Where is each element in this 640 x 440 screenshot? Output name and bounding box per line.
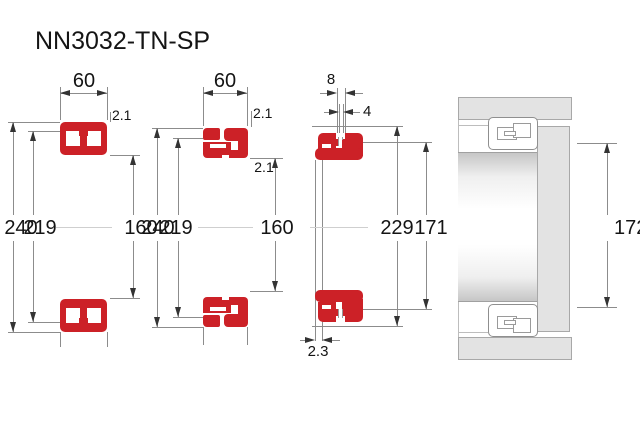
- dim-line: [397, 126, 398, 215]
- extension-line: [247, 87, 248, 126]
- dim-line: [178, 138, 179, 215]
- bearing-section-top: [315, 133, 363, 160]
- dim-line: [157, 241, 158, 327]
- dim-line: [178, 241, 179, 317]
- dim-groove-label: 8: [327, 72, 335, 87]
- ring-notch: [222, 297, 229, 300]
- dim-arrow: [60, 90, 70, 96]
- dim-arrow: [423, 299, 429, 309]
- dim-arrow: [175, 307, 181, 317]
- dim-line: [353, 112, 360, 113]
- rib-outline: [504, 131, 516, 136]
- dim-arrow: [203, 90, 213, 96]
- extension-line: [339, 104, 340, 133]
- dim-hole-label: 4: [363, 104, 371, 119]
- roller-window: [87, 131, 101, 146]
- dim-line: [13, 122, 14, 215]
- housing-shoulder: [537, 126, 570, 332]
- leader-line: [110, 112, 111, 122]
- bearing-outline-top: [488, 117, 538, 150]
- extension-line: [107, 87, 108, 120]
- dim-arrow: [237, 90, 247, 96]
- dim-abutment-label: 171: [414, 218, 447, 238]
- extension-line: [110, 298, 140, 299]
- cage-tab: [79, 131, 88, 136]
- extension-line: [8, 332, 60, 333]
- dim-line: [355, 93, 363, 94]
- cage-slot: [210, 307, 226, 311]
- leader-line: [251, 111, 252, 127]
- bearing-section-top: [60, 122, 107, 155]
- dim-arrow: [272, 281, 278, 291]
- dim-arrow: [345, 90, 355, 96]
- extension-line: [250, 291, 283, 292]
- extension-line: [352, 142, 432, 143]
- inner-strip: [315, 148, 363, 160]
- extension-line: [152, 327, 203, 328]
- dim-offset-label: 2.3: [308, 344, 329, 359]
- cage-slot: [210, 144, 226, 148]
- rib-outline: [504, 320, 516, 325]
- housing-bottom: [458, 337, 572, 360]
- outer-ring-block: [203, 315, 220, 327]
- roller-window: [66, 131, 80, 146]
- dim-recess-label: 172: [614, 218, 640, 238]
- dim-arrow: [394, 126, 400, 136]
- extension-line: [312, 326, 403, 327]
- dim-arrow: [343, 109, 353, 115]
- extension-line: [28, 322, 60, 323]
- outer-ring-block: [203, 128, 220, 140]
- extension-line: [247, 327, 248, 345]
- dim-arrow: [10, 122, 16, 132]
- bearing-section-bottom: [60, 299, 107, 332]
- dim-arrow: [604, 297, 610, 307]
- dim-arrow: [329, 109, 339, 115]
- extension-line: [577, 307, 617, 308]
- extension-line: [577, 143, 617, 144]
- dim-arrow: [175, 138, 181, 148]
- dim-arrow: [30, 131, 36, 141]
- dim-chamfer-label: 2.1: [112, 108, 131, 122]
- dim-line: [13, 241, 14, 332]
- bearing-outline-bottom: [488, 304, 538, 337]
- dim-line: [332, 340, 340, 341]
- roller-window: [66, 308, 80, 323]
- ring-notch: [222, 155, 229, 158]
- dim-arrow: [30, 312, 36, 322]
- center-line: [310, 227, 368, 228]
- bore-line: [458, 125, 488, 126]
- dim-line: [33, 131, 34, 215]
- shaft: [458, 152, 537, 302]
- dim-raceway-label: 219: [159, 218, 192, 238]
- roller-block: [224, 314, 248, 327]
- extension-line: [352, 309, 432, 310]
- drawing-canvas: NN3032-TN-SP 60 2.1 240 219: [0, 0, 640, 440]
- dim-arrow: [130, 155, 136, 165]
- page-title: NN3032-TN-SP: [35, 28, 210, 54]
- dim-line: [607, 143, 608, 215]
- dim-arrow: [10, 322, 16, 332]
- cage-tab: [79, 318, 88, 323]
- dim-shoulder-label: 229: [380, 218, 413, 238]
- dim-line: [426, 142, 427, 215]
- dim-arrow: [97, 90, 107, 96]
- dim-width-label: 60: [73, 71, 95, 91]
- dim-arrow: [604, 143, 610, 153]
- center-line: [56, 227, 112, 228]
- dim-arrow: [327, 90, 337, 96]
- dim-arrow: [154, 317, 160, 327]
- center-line: [198, 227, 253, 228]
- dim-chamfer-inner-label: 2.1: [254, 160, 273, 174]
- lube-hole: [338, 309, 343, 318]
- roller-window: [87, 308, 101, 323]
- bearing-section-bottom: [315, 290, 363, 322]
- dim-arrow: [423, 142, 429, 152]
- dim-line: [397, 241, 398, 326]
- dim-arrow: [130, 288, 136, 298]
- dim-arrow: [154, 128, 160, 138]
- extension-line: [107, 332, 108, 347]
- dim-arrow: [394, 316, 400, 326]
- bore-line: [458, 332, 488, 333]
- dim-width-label: 60: [214, 71, 236, 91]
- dim-bore-label: 160: [260, 218, 293, 238]
- bearing-section-bottom: [203, 297, 248, 327]
- extension-line: [203, 327, 204, 345]
- dim-line: [33, 241, 34, 322]
- dim-raceway-label: 219: [23, 218, 56, 238]
- dim-chamfer-outer-label: 2.1: [253, 106, 272, 120]
- dim-line: [157, 128, 158, 215]
- extension-line: [312, 126, 403, 127]
- extension-line: [60, 332, 61, 347]
- bearing-section-top: [203, 128, 248, 158]
- extension-line: [173, 317, 203, 318]
